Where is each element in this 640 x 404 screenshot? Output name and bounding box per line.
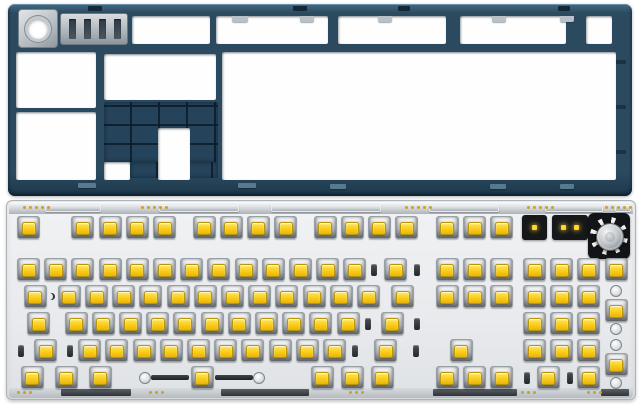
switch-body <box>523 312 546 335</box>
switch-body <box>523 285 546 308</box>
stabilizer-insert <box>139 372 151 384</box>
gold-contact-dots <box>527 206 554 209</box>
backspace-switch <box>369 257 423 282</box>
stabilizer-insert <box>610 377 622 389</box>
indicator-led-panel <box>522 215 547 240</box>
switch-body <box>146 312 169 335</box>
stabilizer-clip <box>365 318 371 330</box>
switch-body <box>214 339 237 362</box>
switch-body <box>436 366 459 389</box>
switch-body <box>577 312 600 335</box>
metal-knob <box>596 223 624 251</box>
nav-low-switch <box>461 284 488 309</box>
edge-tab <box>61 389 131 396</box>
right-shift-switch <box>348 338 423 363</box>
bottom-alpha-switch <box>212 338 239 363</box>
stabilizer-insert <box>610 339 622 351</box>
number-row-switch <box>341 257 368 282</box>
led-strip-panel <box>552 215 587 240</box>
number-row-switch <box>314 257 341 282</box>
left-column-window-upper <box>16 52 96 108</box>
yellow-led <box>561 225 566 230</box>
knob-panel <box>588 213 630 259</box>
arrow-switch <box>488 365 515 390</box>
numpad-plus-switch <box>603 284 630 336</box>
switch-body <box>343 258 366 281</box>
bottom-alpha-switch <box>294 338 321 363</box>
case-bottom-tab <box>490 184 506 189</box>
edge-tab <box>433 389 517 396</box>
window-clip-tab <box>378 16 392 22</box>
crescent-mark <box>48 293 55 300</box>
gold-contact-dots <box>149 391 164 394</box>
bottom-alpha-switch <box>239 338 266 363</box>
stabilizer-clip <box>413 345 419 357</box>
switch-body <box>105 339 128 362</box>
stabilizer-clip <box>524 372 530 384</box>
top-strip-window <box>132 16 210 44</box>
edge-tab <box>601 389 629 396</box>
number-row-switch <box>205 257 232 282</box>
qwerty-row-switch <box>301 284 328 309</box>
switch-body <box>436 258 459 281</box>
switch-body <box>207 258 230 281</box>
switch-body <box>221 285 244 308</box>
switch-body <box>463 258 486 281</box>
stabilizer-insert <box>253 372 265 384</box>
spacebar-switch <box>117 365 287 390</box>
f5-f8-switch <box>245 215 272 240</box>
number-row-switch <box>42 257 69 282</box>
qwerty-row-switch <box>355 284 382 309</box>
stabilizer-clip <box>371 264 377 276</box>
switch-body <box>187 339 210 362</box>
switch-body <box>153 258 176 281</box>
number-row-switch <box>124 257 151 282</box>
case-right-notch <box>616 60 626 64</box>
qwerty-row-switch <box>137 284 164 309</box>
numpad-456-switch <box>575 311 602 336</box>
switch-body <box>269 339 292 362</box>
numpad-top-switch <box>603 257 630 282</box>
number-row-switch <box>260 257 287 282</box>
top-strip-window <box>338 16 446 44</box>
switch-body <box>381 312 404 335</box>
switch-body <box>24 285 47 308</box>
switch-body <box>194 285 217 308</box>
rotary-encoder-knob <box>588 213 630 259</box>
switch-body <box>289 258 312 281</box>
switch-body <box>89 366 112 389</box>
stabilizer-clip <box>567 372 573 384</box>
up-arrow-switch <box>447 338 474 363</box>
numpad-0-switch <box>521 365 575 390</box>
f9-f12-switch <box>393 215 420 240</box>
switch-body <box>341 366 364 389</box>
arrow-switch <box>461 365 488 390</box>
numpad-456-switch <box>521 311 548 336</box>
switch-body <box>463 216 486 239</box>
switch-body <box>296 339 319 362</box>
switch-body <box>99 258 122 281</box>
knob-mount-plate <box>18 9 58 48</box>
switch-body <box>605 258 628 281</box>
switch-body <box>490 366 513 389</box>
keyboard-case <box>8 4 632 196</box>
window-clip-tab <box>560 16 574 22</box>
connector-slot <box>114 19 121 39</box>
left-column-window-lower <box>16 112 96 180</box>
stabilizer-insert <box>610 285 622 297</box>
f5-f8-switch <box>272 215 299 240</box>
number-row-switch <box>178 257 205 282</box>
left-modifier-switch <box>15 365 49 390</box>
switch-body <box>550 312 573 335</box>
nav-mid-switch <box>488 257 515 282</box>
window-clip-tab <box>492 16 506 22</box>
numpad-123-switch <box>548 338 575 363</box>
left-modifier-switch <box>49 365 83 390</box>
switch-body <box>550 258 573 281</box>
qwerty-row-switch <box>165 284 192 309</box>
yellow-led <box>532 225 537 230</box>
case-bottom-tab <box>238 183 256 188</box>
qwerty-row-switch <box>246 284 273 309</box>
switch-body <box>99 216 122 239</box>
bottom-alpha-switch <box>76 338 103 363</box>
gold-contact-dots <box>605 206 632 209</box>
case-right-notch <box>616 150 626 154</box>
nav-low-switch <box>488 284 515 309</box>
keyboard-pcb-plate <box>6 200 636 400</box>
switch-body <box>605 353 628 376</box>
switch-body <box>368 216 391 239</box>
left-modifier-switch <box>83 365 117 390</box>
stabilizer-clip <box>67 345 73 357</box>
stabilizer-clip <box>414 264 420 276</box>
f1-f4-switch <box>124 215 151 240</box>
nav-low-switch <box>434 284 461 309</box>
stabilizer-wire <box>215 375 253 380</box>
switch-body <box>139 285 162 308</box>
switch-body <box>17 258 40 281</box>
pcb-top-chrome-edge <box>9 202 633 214</box>
arrow-switch <box>434 365 461 390</box>
switch-body <box>314 216 337 239</box>
window-clip-tab <box>300 16 314 22</box>
numpad-top-switch <box>521 257 548 282</box>
switch-body <box>550 285 573 308</box>
home-row-switch <box>90 311 117 336</box>
home-row-switch <box>280 311 307 336</box>
home-row-switch <box>199 311 226 336</box>
f5-f8-switch <box>218 215 245 240</box>
nav-top-switch <box>461 215 488 240</box>
switch-body <box>180 258 203 281</box>
nav-mid-switch <box>461 257 488 282</box>
switch-body <box>577 258 600 281</box>
switch-body <box>65 312 88 335</box>
top-strip-window <box>586 16 612 44</box>
stabilizer-insert <box>610 323 622 335</box>
numpad-123-switch <box>575 338 602 363</box>
backslash-switch <box>382 284 423 309</box>
switch-body <box>27 312 50 335</box>
chrome-bar <box>429 204 499 212</box>
switch-body <box>133 339 156 362</box>
number-row-switch <box>233 257 260 282</box>
f1-f4-switch <box>97 215 124 240</box>
switch-body <box>311 366 334 389</box>
switch-body <box>337 312 360 335</box>
connector-block <box>60 13 128 45</box>
switch-body <box>330 285 353 308</box>
numpad-enter-switch <box>603 338 630 390</box>
f5-f8-switch <box>190 215 217 240</box>
home-row-switch <box>144 311 171 336</box>
switch-body <box>463 285 486 308</box>
switch-body <box>316 258 339 281</box>
nav-top-switch <box>488 215 515 240</box>
switch-body <box>126 216 149 239</box>
switch-body <box>55 366 78 389</box>
numpad-789-switch <box>521 284 548 309</box>
right-modifier-switch <box>367 365 397 390</box>
switch-body <box>391 285 414 308</box>
switch-body <box>395 216 418 239</box>
switch-body <box>490 258 513 281</box>
switch-body <box>247 216 270 239</box>
switch-body <box>357 285 380 308</box>
switch-body <box>173 312 196 335</box>
qwerty-row-switch <box>192 284 219 309</box>
case-right-notch <box>616 105 626 109</box>
stabilizer-clip <box>352 345 358 357</box>
qwerty-row-switch <box>110 284 137 309</box>
number-row-switch <box>15 257 42 282</box>
qwerty-row-switch <box>219 284 246 309</box>
window-clip-tab <box>232 16 248 22</box>
switch-body <box>71 216 94 239</box>
connector-slot <box>99 19 106 39</box>
switch-body <box>262 258 285 281</box>
switch-body <box>235 258 258 281</box>
led-strip-window <box>552 215 587 240</box>
bottom-alpha-switch <box>267 338 294 363</box>
switch-body <box>436 216 459 239</box>
edge-tab <box>221 389 309 396</box>
main-cavity-window <box>222 52 616 180</box>
switch-body <box>17 216 40 239</box>
switch-body <box>153 216 176 239</box>
chrome-bar <box>159 204 239 212</box>
qwerty-row-switch <box>83 284 110 309</box>
switch-body <box>577 285 600 308</box>
switch-body <box>523 339 546 362</box>
switch-body <box>34 339 57 362</box>
switch-body <box>193 216 216 239</box>
switch-body <box>92 312 115 335</box>
numpad-123-switch <box>521 338 548 363</box>
switch-body <box>577 366 600 389</box>
qwerty-row-switch <box>56 284 83 309</box>
case-latch-slot <box>558 6 570 11</box>
bottom-alpha-switch <box>131 338 158 363</box>
switch-body <box>384 258 407 281</box>
switch-body <box>490 285 513 308</box>
knob-hole <box>28 19 48 39</box>
case-latch-slot <box>398 6 410 11</box>
numpad-top-switch <box>575 257 602 282</box>
switch-body <box>450 339 473 362</box>
gold-contact-dots <box>405 206 432 209</box>
capslock-switch <box>15 311 63 336</box>
bottom-alpha-switch <box>185 338 212 363</box>
switch-body <box>220 216 243 239</box>
switch-body <box>341 216 364 239</box>
case-latch-slot <box>293 6 307 11</box>
switch-body <box>275 285 298 308</box>
case-bottom-tab <box>78 183 96 188</box>
switch-body <box>323 339 346 362</box>
switch-body <box>58 285 81 308</box>
home-row-switch <box>226 311 253 336</box>
stabilizer-wire <box>151 375 189 380</box>
switch-body <box>85 285 108 308</box>
f1-f4-switch <box>69 215 96 240</box>
case-bottom-tab <box>560 184 574 189</box>
battery-bay-cutout <box>158 128 190 180</box>
switch-body <box>201 312 224 335</box>
switch-body <box>537 366 560 389</box>
home-row-switch <box>307 311 334 336</box>
connector-slot <box>84 19 91 39</box>
numpad-dot-switch <box>575 365 602 390</box>
switch-body <box>21 366 44 389</box>
home-row-switch <box>63 311 90 336</box>
battery-rib-leg <box>130 162 160 178</box>
switch-body <box>523 258 546 281</box>
stabilizer-clip <box>18 345 24 357</box>
switch-body <box>112 285 135 308</box>
gold-contact-dots <box>23 206 50 209</box>
number-row-switch <box>287 257 314 282</box>
switch-body <box>44 258 67 281</box>
switch-body <box>255 312 278 335</box>
switch-body <box>282 312 305 335</box>
switch-body <box>248 285 271 308</box>
switch-body <box>126 258 149 281</box>
nav-top-switch <box>434 215 461 240</box>
f1-f4-switch <box>151 215 178 240</box>
right-modifier-switch <box>337 365 367 390</box>
stabilizer-clip <box>414 318 420 330</box>
chrome-bar <box>45 204 101 212</box>
switch-body <box>490 216 513 239</box>
switch-body <box>228 312 251 335</box>
home-row-switch <box>253 311 280 336</box>
switch-body <box>274 216 297 239</box>
switch-body <box>463 366 486 389</box>
f9-f12-switch <box>311 215 338 240</box>
switch-body <box>577 339 600 362</box>
nav-mid-switch <box>434 257 461 282</box>
bottom-alpha-switch <box>158 338 185 363</box>
home-row-switch <box>335 311 362 336</box>
switch-body <box>303 285 326 308</box>
numpad-789-switch <box>548 284 575 309</box>
switch-body <box>78 339 101 362</box>
numpad-456-switch <box>548 311 575 336</box>
switch-body <box>191 366 214 389</box>
gold-contact-dots <box>17 391 32 394</box>
home-row-switch <box>171 311 198 336</box>
esc-switch <box>15 215 42 240</box>
qwerty-row-switch <box>273 284 300 309</box>
switch-body <box>550 339 573 362</box>
right-modifier-switch <box>307 365 337 390</box>
number-row-switch <box>97 257 124 282</box>
connector-slot <box>69 19 76 39</box>
number-row-switch <box>69 257 96 282</box>
switch-body <box>71 258 94 281</box>
number-row-switch <box>151 257 178 282</box>
case-latch-slot <box>88 6 102 11</box>
case-bottom-tab <box>330 184 346 189</box>
switch-body <box>374 339 397 362</box>
switch-body <box>309 312 332 335</box>
gold-contact-dots <box>141 206 168 209</box>
switch-body <box>160 339 183 362</box>
home-row-switch <box>117 311 144 336</box>
bottom-alpha-switch <box>103 338 130 363</box>
switch-body <box>241 339 264 362</box>
gold-contact-dots <box>349 391 364 394</box>
switch-body <box>167 285 190 308</box>
qwerty-row-switch <box>328 284 355 309</box>
below-grid-window <box>104 162 130 180</box>
yellow-led <box>574 225 579 230</box>
f9-f12-switch <box>366 215 393 240</box>
indicator-led-window <box>521 215 548 240</box>
switch-body <box>436 285 459 308</box>
gold-contact-dots <box>587 391 602 394</box>
gold-contact-dots <box>521 391 536 394</box>
bottom-alpha-switch <box>321 338 348 363</box>
numpad-top-switch <box>548 257 575 282</box>
left-shift-switch <box>15 338 76 363</box>
mid-upper-window <box>104 54 216 100</box>
switch-body <box>119 312 142 335</box>
switch-body <box>605 299 628 322</box>
f9-f12-switch <box>339 215 366 240</box>
enter-switch <box>362 311 423 336</box>
chrome-bar <box>271 204 381 212</box>
top-strip-window <box>460 16 566 44</box>
numpad-789-switch <box>575 284 602 309</box>
switch-body <box>371 366 394 389</box>
